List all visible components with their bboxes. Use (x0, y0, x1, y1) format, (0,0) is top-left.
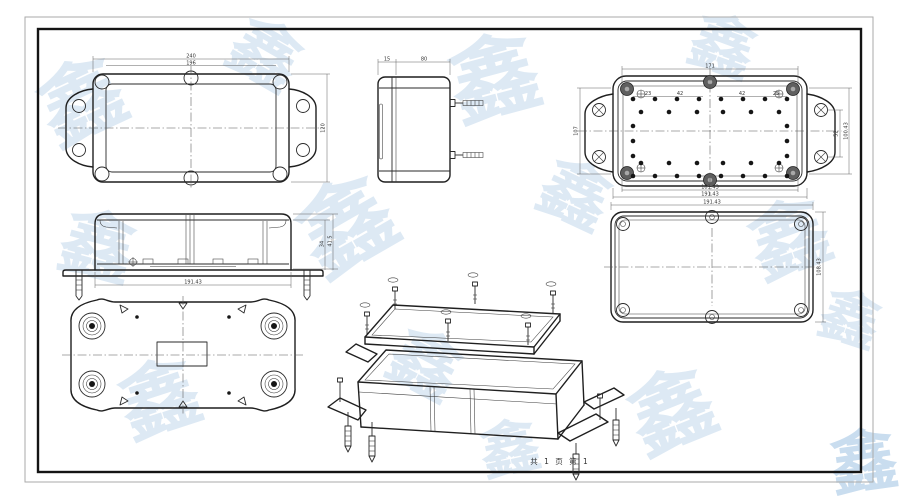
cover-screw (450, 100, 483, 107)
dim-base-view-sp1: 23 (645, 91, 651, 97)
dim-base-view-sp2: 42 (677, 91, 683, 97)
view-lid-top: 191.43 108.43 (604, 200, 826, 324)
drawing-sheet: 鑫 鑫 鑫 鑫 鑫 鑫 鑫 鑫 鑫 鑫 鑫 鑫 鑫 鑫 (0, 0, 900, 500)
bottom-boss (261, 313, 287, 339)
dim-top-view-outer-width: 240 (186, 54, 196, 60)
dim-elevation-outer-height: 41.5 (328, 235, 334, 246)
bottom-boss (79, 313, 105, 339)
view-inside-base: 171 23 42 42 25 107 52 100.43 181.43 191… (574, 64, 853, 200)
bottom-boss (79, 371, 105, 397)
dim-base-view-left-height: 107 (574, 126, 580, 136)
ear-hole-hatched (815, 151, 828, 164)
outer-frame (25, 17, 873, 482)
dim-base-view-sp4: 25 (773, 91, 779, 97)
dim-lid-view-width: 191.43 (703, 200, 721, 206)
exploded-base (358, 350, 584, 439)
dim-base-view-bottom-inner: 181.43 (701, 185, 719, 191)
flange-anchor-screw (76, 270, 82, 300)
flange-anchor-screw (304, 270, 310, 300)
dim-lid-view-height: 108.43 (817, 258, 823, 276)
nameplate-recess (157, 342, 207, 366)
exploded-lid (365, 305, 560, 354)
dim-base-view-right-inner: 52 (834, 130, 840, 136)
bottom-boss (261, 371, 287, 397)
dim-side-view-body-depth: 80 (421, 57, 427, 63)
dim-elevation-width: 191.43 (184, 280, 202, 286)
dim-base-view-sp3: 42 (739, 91, 745, 97)
dim-base-view-top-span: 171 (705, 64, 715, 70)
view-side-end: 15 80 (378, 57, 483, 183)
ear-hole-hatched (593, 104, 606, 117)
exploded-wall-anchors (345, 408, 619, 480)
footer-page-text: 共 1 页 第 1 (530, 456, 590, 466)
dim-side-view-lid-depth: 15 (384, 57, 390, 63)
view-side-elevation: 34 41.5 191.43 (63, 214, 338, 300)
dim-top-view-inner-width: 196 (186, 61, 196, 67)
drawing-canvas: 240 196 120 (0, 0, 900, 500)
view-exploded-assembly (328, 273, 624, 480)
dim-elevation-inner-height: 34 (320, 241, 326, 247)
dim-base-view-bottom-outer: 191.43 (701, 192, 719, 198)
ear-hole-hatched (815, 104, 828, 117)
view-top-exterior: 240 196 120 (58, 54, 330, 191)
dim-top-view-height: 120 (321, 123, 327, 133)
cover-screw (450, 152, 483, 159)
dim-base-view-right-outer: 100.43 (844, 122, 850, 140)
ear-hole-hatched (593, 151, 606, 164)
view-bottom-exterior (62, 296, 303, 414)
